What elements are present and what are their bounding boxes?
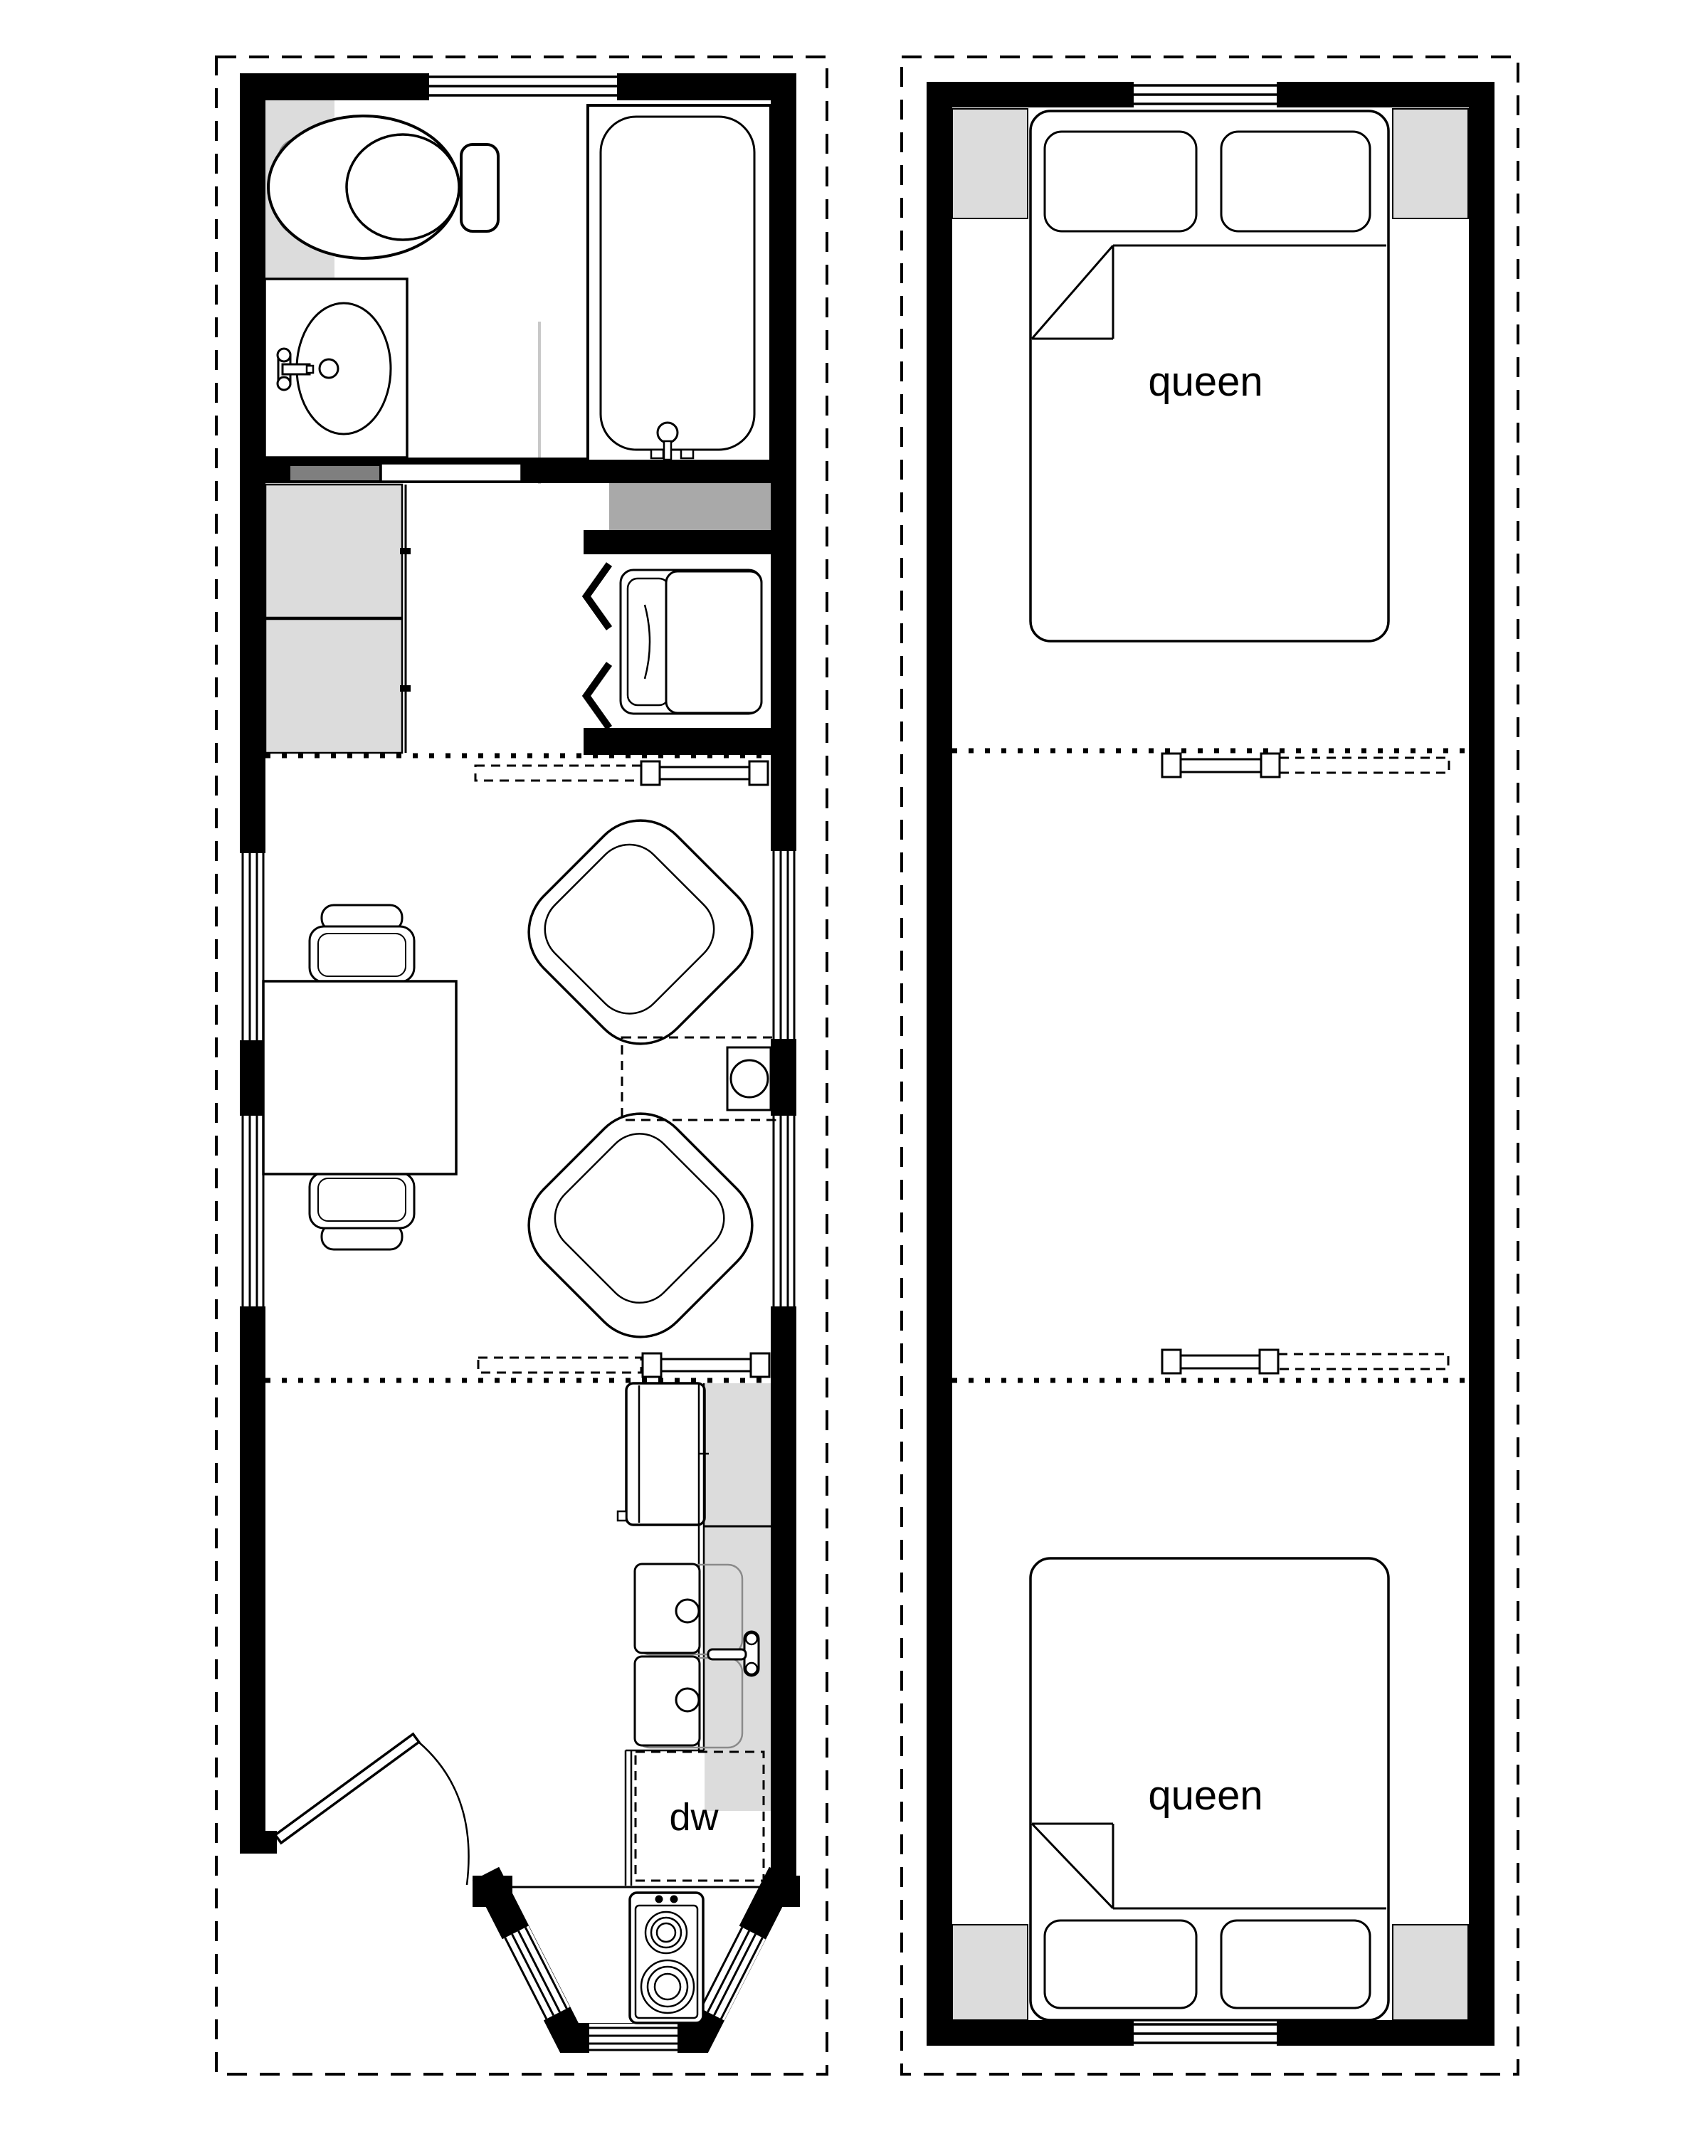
loft-plan: queen queen xyxy=(902,57,1518,2074)
window-icon xyxy=(429,72,617,100)
window-icon xyxy=(1134,80,1277,109)
laundry-area xyxy=(586,483,771,728)
window-icon xyxy=(240,853,265,1040)
entry-door xyxy=(275,1734,469,1885)
sink-drain-icon xyxy=(676,1600,699,1622)
main-floor-plan: dw xyxy=(216,57,827,2074)
laundry-nook-bottom-wall xyxy=(584,728,796,755)
dining-chair xyxy=(310,905,414,982)
window-icon xyxy=(1134,2019,1277,2047)
window-icon xyxy=(771,1116,796,1306)
fridge-handle-icon xyxy=(618,1511,626,1521)
window-icon xyxy=(240,1116,265,1306)
loft-ladder xyxy=(475,761,768,785)
dining-table xyxy=(263,981,456,1174)
refrigerator xyxy=(618,1383,705,1525)
queen-bed: queen xyxy=(1030,111,1388,641)
bathtub xyxy=(588,105,771,461)
cooktop xyxy=(630,1893,703,2023)
table-lamp-icon xyxy=(731,1060,768,1097)
toilet-tank xyxy=(461,144,498,231)
bathroom xyxy=(265,100,771,482)
living-area xyxy=(263,799,775,1358)
loft-ladder xyxy=(1162,754,1449,777)
laundry-nook-top-wall xyxy=(584,530,796,554)
door-jamb xyxy=(240,1831,277,1854)
bay-window-icon xyxy=(589,2024,678,2053)
bed-size-label: queen xyxy=(1148,1772,1262,1819)
dishwasher-label: dw xyxy=(669,1796,719,1839)
door-swing-arc xyxy=(418,1742,469,1885)
laundry-counter xyxy=(609,483,771,530)
bed-pillow xyxy=(1221,1920,1370,2008)
sink-drain-icon xyxy=(320,359,338,378)
sink-drain-icon xyxy=(676,1689,699,1711)
bed-pillow xyxy=(1221,132,1370,231)
loft-ladder xyxy=(478,1353,769,1377)
lounge-chair xyxy=(507,1092,773,1358)
bed-pillow xyxy=(1045,1920,1196,2008)
side-table xyxy=(622,1037,775,1120)
bed-pillow xyxy=(1045,132,1196,231)
dining-chair xyxy=(310,1173,414,1249)
bifold-door-icon xyxy=(586,564,609,728)
toilet xyxy=(268,116,498,258)
washer-dryer xyxy=(621,570,761,714)
window-icon xyxy=(771,851,796,1039)
bed-size-label: queen xyxy=(1148,359,1262,405)
loft-ladder xyxy=(1162,1350,1448,1373)
storage-cabinets xyxy=(265,485,411,753)
vanity-sink xyxy=(265,279,407,458)
queen-bed: queen xyxy=(1030,1558,1388,2020)
lounge-chair xyxy=(507,799,773,1064)
